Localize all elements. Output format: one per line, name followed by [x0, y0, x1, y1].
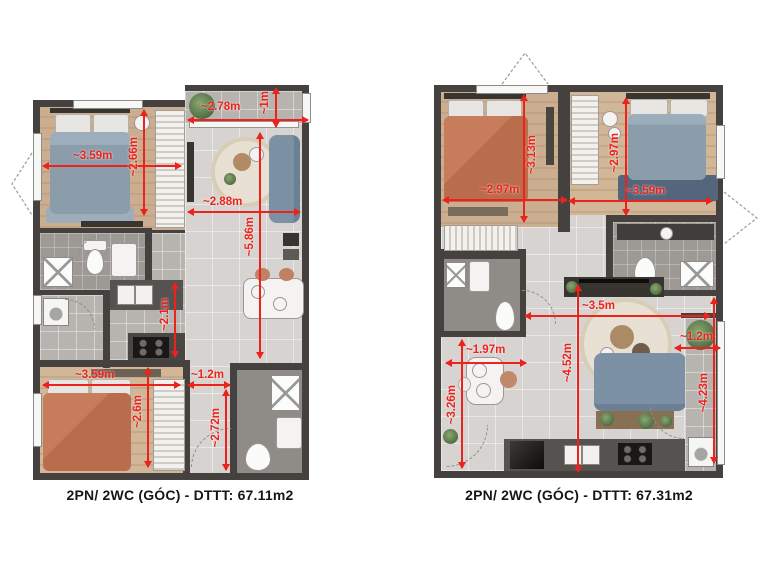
dimension-label: ~2.97m [610, 133, 622, 172]
tv-console [187, 142, 194, 202]
bathroom-sink [660, 227, 673, 240]
dining-table [243, 278, 304, 319]
plant [600, 412, 614, 426]
wall [606, 215, 716, 222]
window [476, 85, 548, 94]
tv [579, 279, 649, 283]
dimension-line [188, 384, 230, 386]
wall [230, 370, 237, 473]
dimension-label: ~3.5m [582, 301, 615, 313]
dimension-line [188, 211, 300, 213]
bedside-table [134, 115, 150, 131]
dimension-label: ~2.6m [133, 395, 145, 428]
bathroom-sink [276, 417, 302, 449]
plant [443, 429, 458, 444]
wall [230, 363, 302, 370]
wall [40, 360, 190, 367]
dimension-line [443, 199, 567, 201]
plate [273, 297, 287, 311]
window [717, 321, 725, 465]
dimension-line [525, 315, 710, 317]
dimension-line [43, 384, 180, 386]
plate [472, 363, 487, 378]
floorplan-left: ~2.78m ~1m ~3.59m ~2.66m ~2.88m ~5.86m ~… [33, 85, 309, 480]
toilet [495, 301, 515, 331]
dimension-label: ~1.97m [466, 345, 505, 357]
dimension-line [446, 362, 526, 364]
bed-pillow [93, 114, 129, 134]
window [33, 393, 42, 447]
tv-console [81, 221, 143, 227]
dimension-line [225, 390, 227, 470]
floorplan-right: ~2.97m ~3.13m ~2.97m ~3.59m ~3.5m ~1.97m… [434, 85, 723, 478]
plate [476, 383, 491, 398]
dimension-label: ~2.78m [201, 102, 240, 114]
coffee-table [610, 325, 634, 349]
dining-chair [279, 268, 294, 281]
dimension-label: ~3.59m [626, 186, 665, 198]
bed-pillow [55, 114, 91, 134]
wall [103, 290, 110, 368]
dimension-line [43, 165, 181, 167]
dimension-label: ~1.2m [680, 332, 713, 344]
bed-duvet [50, 132, 130, 214]
dimension-label: ~1m [260, 91, 272, 114]
dimension-line [188, 119, 308, 121]
bed-duvet [43, 393, 131, 471]
dimension-label: ~2.97m [480, 185, 519, 197]
bathroom-sink [111, 243, 137, 277]
floorplan-sheet: ~2.78m ~1m ~3.59m ~2.66m ~2.88m ~5.86m ~… [0, 0, 768, 576]
door-swing-dashed [723, 190, 759, 246]
clothes-rack [546, 107, 554, 165]
window [33, 295, 42, 325]
shower [680, 261, 714, 287]
shower [446, 262, 466, 288]
dimension-line [569, 200, 712, 202]
dimension-line [577, 285, 579, 472]
dimension-label: ~3.13m [527, 135, 539, 174]
kitchen-sink [564, 445, 600, 465]
dining-chair [500, 371, 517, 388]
dimension-label: ~3.26m [447, 385, 459, 424]
shower [271, 375, 300, 411]
stool [602, 111, 618, 127]
side-table [249, 147, 264, 162]
dimension-label: ~4.23m [699, 373, 711, 412]
caption-left: 2PN/ 2WC (GÓC) - DTTT: 67.11m2 [40, 487, 320, 503]
dimension-line [147, 368, 149, 467]
kitchen-sink [117, 285, 153, 305]
dimension-line [275, 88, 277, 127]
caption-right: 2PN/ 2WC (GÓC) - DTTT: 67.31m2 [434, 487, 724, 503]
wardrobe [153, 379, 185, 471]
shower [43, 257, 73, 287]
dimension-label: ~3.59m [75, 370, 114, 382]
dimension-label: ~4.52m [563, 343, 575, 382]
dimension-line [461, 340, 463, 468]
dimension-line [259, 133, 261, 358]
door-swing-dashed [500, 52, 550, 85]
appliance [283, 249, 299, 260]
dining-chair [458, 377, 471, 392]
appliance [283, 233, 299, 246]
fridge [510, 441, 544, 469]
dimension-label: ~5.86m [245, 217, 257, 256]
dimension-label: ~3.59m [73, 151, 112, 163]
plate [251, 285, 265, 299]
dimension-line [713, 298, 715, 463]
dimension-line [174, 283, 176, 357]
dimension-label: ~2.88m [203, 197, 242, 209]
wall [40, 290, 103, 295]
sofa [594, 353, 686, 411]
plant [224, 173, 236, 185]
desk [448, 207, 508, 216]
window [716, 125, 725, 179]
cooktop [133, 337, 169, 358]
sliding-door [189, 121, 299, 128]
bed-duvet [628, 114, 706, 180]
dining-chair [255, 268, 270, 281]
cooktop [618, 443, 652, 465]
toilet [245, 443, 271, 471]
door-swing-dashed [11, 151, 33, 217]
dimension-label: ~1.2m [191, 370, 224, 382]
dimension-label: ~2.1m [160, 298, 172, 331]
dimension-label: ~2.66m [129, 137, 141, 176]
wall [40, 228, 152, 233]
window [73, 100, 143, 109]
wardrobe [571, 95, 599, 185]
wall [558, 92, 570, 232]
window [33, 133, 42, 201]
wardrobe [444, 225, 518, 251]
dimension-line [143, 110, 145, 215]
plant [650, 283, 662, 295]
dimension-label: ~2.72m [211, 408, 223, 447]
exterior-notch [33, 85, 185, 100]
bathroom-sink [469, 261, 490, 292]
